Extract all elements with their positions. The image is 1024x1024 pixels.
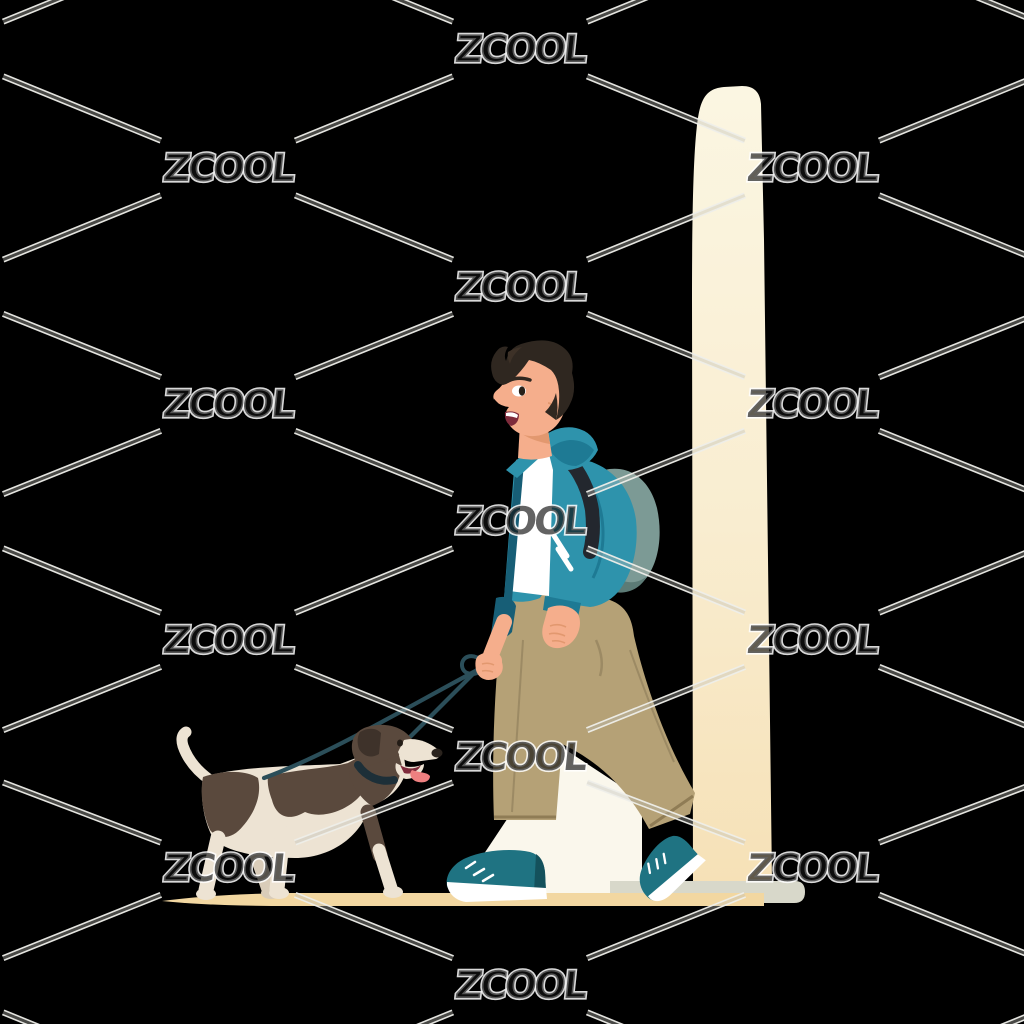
watermark-text: ZCOOL (161, 146, 298, 190)
watermark-text: ZCOOL (161, 382, 298, 426)
pupil (519, 386, 525, 395)
watermark-text: ZCOOL (453, 735, 590, 779)
watermark-text: ZCOOL (453, 27, 590, 71)
watermark-text: ZCOOL (745, 382, 882, 426)
wall-column (692, 86, 772, 882)
watermark-text: ZCOOL (745, 618, 882, 662)
watermark-text: ZCOOL (453, 265, 590, 309)
watermark-text: ZCOOL (161, 846, 298, 890)
watermark-text: ZCOOL (453, 499, 590, 543)
dog-paw (383, 886, 403, 898)
dog-eye (397, 740, 403, 747)
dog-nose (432, 749, 443, 758)
watermark-text: ZCOOL (745, 846, 882, 890)
watermark-text: ZCOOL (745, 146, 882, 190)
watermark-text: ZCOOL (453, 963, 590, 1007)
thumb (492, 654, 502, 668)
illustration-canvas: ZCOOLZCOOLZCOOLZCOOLZCOOLZCOOLZCOOLZCOOL… (0, 0, 1024, 1024)
watermark-text: ZCOOL (161, 618, 298, 662)
